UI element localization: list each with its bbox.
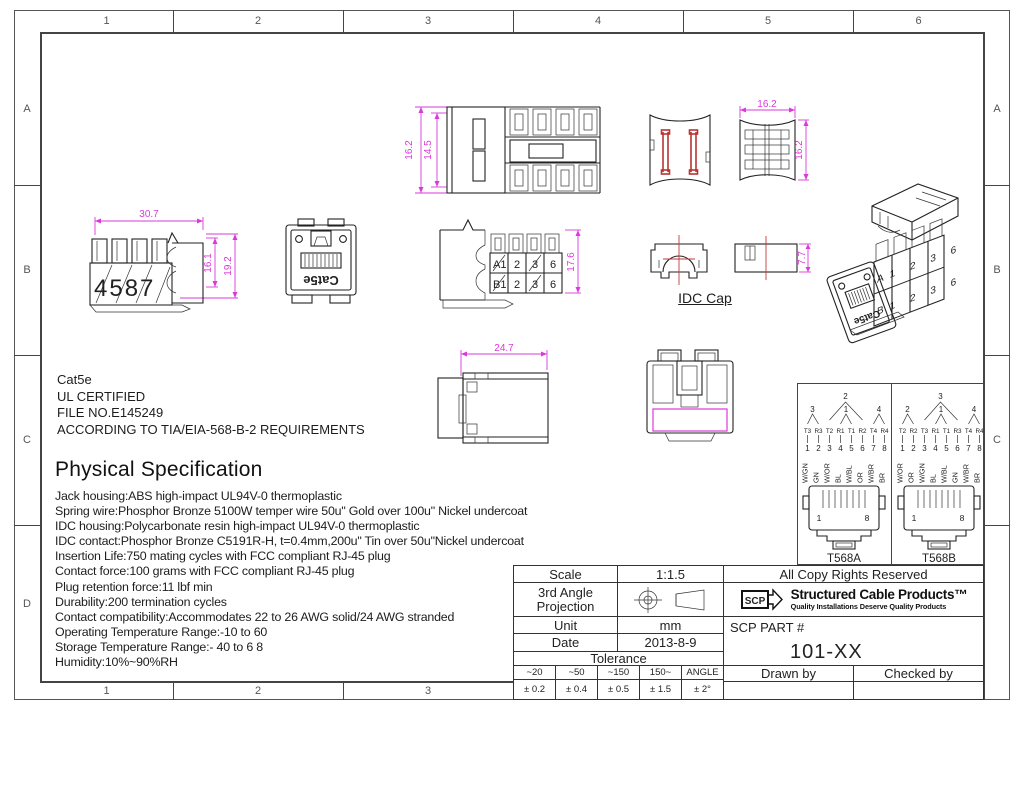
dim-19-2: 19.2 — [223, 256, 234, 276]
dim-17-6: 17.6 — [566, 252, 577, 272]
copyright-cell: All Copy Rights Reserved — [723, 565, 984, 583]
pin-number: 2 — [911, 444, 916, 453]
grid-col-3: 3 — [343, 10, 513, 32]
wire-color: W/BR — [867, 464, 876, 483]
dim-cap-w: 16.2 — [757, 99, 777, 110]
tr-label: T2 — [899, 428, 907, 435]
tr-label: R4 — [975, 428, 984, 435]
dim-16-1: 16.1 — [203, 253, 214, 273]
part-number-value: 101-XX — [790, 641, 863, 664]
spec-line: Insertion Life:750 mating cycles with FC… — [55, 549, 525, 564]
pin-number: 5 — [849, 444, 854, 453]
idc-cap-side-views: 7.7 — [633, 230, 818, 290]
pin-number: 1 — [900, 444, 905, 453]
pair-number: 3 — [810, 405, 815, 414]
wire-color: OR — [907, 472, 916, 483]
tr-label: T3 — [921, 428, 929, 435]
grid-col-bottom-1: 1 — [40, 682, 173, 700]
side-view-drawing: 30.7 16.1 19.2 4587 — [80, 205, 255, 320]
dim-24-7: 24.7 — [494, 343, 514, 354]
grid-col-6: 6 — [853, 10, 984, 32]
cell-a1: A1 — [493, 259, 506, 271]
tol-value-3: ± 0.5 — [597, 679, 640, 700]
pin-number: 6 — [860, 444, 865, 453]
grid-row-B: B — [14, 185, 40, 355]
tol-range-1: ~20 — [513, 665, 556, 680]
dim-7-7: 7.7 — [797, 251, 808, 265]
tol-range-2: ~50 — [555, 665, 598, 680]
brand-tagline: Quality Installations Deserve Quality Pr… — [791, 602, 968, 611]
tr-label: T4 — [965, 428, 973, 435]
tr-label: R1 — [836, 428, 845, 435]
t568b-diagram: 3 2 1 4 T2 R2 T3 R1 T1 R3 T4 R4 1 — [891, 384, 985, 564]
spec-line: Humidity:10%~90%RH — [55, 655, 525, 670]
wire-color: GN — [812, 472, 821, 483]
date-value-cell: 2013-8-9 — [617, 633, 724, 652]
checked-by-signature[interactable] — [853, 681, 984, 700]
tr-label: R3 — [814, 428, 823, 435]
tolerance-header-cell: Tolerance — [513, 651, 724, 666]
grid-row-right-B: B — [984, 185, 1010, 355]
grid-row-A: A — [14, 32, 40, 185]
cell-a3: 3 — [532, 259, 538, 271]
jack-pin-first: 1 — [817, 513, 822, 523]
wire-color: GN — [951, 472, 960, 483]
grid-row-C: C — [14, 355, 40, 525]
wire-color: W/BR — [962, 464, 971, 483]
tol-value-1: ± 0.2 — [513, 679, 556, 700]
cell-b6: 6 — [550, 279, 556, 291]
grid-col-bottom-3: 3 — [343, 682, 513, 700]
t568a-diagram: 2 3 1 4 T3 R3 T2 R1 T1 R2 T4 R4 1 — [798, 384, 891, 564]
tr-label: T1 — [848, 428, 856, 435]
pair-number: 4 — [877, 405, 882, 414]
tr-label: R4 — [880, 428, 889, 435]
part-number-label: SCP PART # — [730, 620, 804, 635]
pair-number: 2 — [843, 392, 848, 401]
iso-row-b: B1 2 3 6 — [877, 274, 962, 317]
third-angle-projection-icon — [626, 585, 716, 615]
grid-col-1: 1 — [40, 10, 173, 32]
tol-range-3: ~150 — [597, 665, 640, 680]
pin-number: 3 — [922, 444, 927, 453]
tr-label: R2 — [858, 428, 867, 435]
note-file: FILE NO.E145249 — [57, 405, 365, 422]
wire-color: W/GN — [801, 463, 810, 483]
jack-pin-first: 1 — [912, 513, 917, 523]
pair-number: 2 — [905, 405, 910, 414]
wire-color: W/GN — [918, 463, 927, 483]
grid-row-right-A: A — [984, 32, 1010, 185]
pin-number: 8 — [977, 444, 982, 453]
checked-by-cell: Checked by — [853, 665, 984, 682]
tr-label: T1 — [943, 428, 951, 435]
spec-title: Physical Specification — [55, 458, 525, 482]
spec-line: Jack housing:ABS high-impact UL94V-0 the… — [55, 489, 525, 504]
spec-line: Durability:200 termination cycles — [55, 595, 525, 610]
pin-number: 1 — [805, 444, 810, 453]
front-face-label: Cat5e — [303, 273, 338, 288]
wiring-standard-name: T568B — [922, 553, 956, 565]
spec-line: Spring wire:Phosphor Bronze 5100W temper… — [55, 504, 525, 519]
pin-number: 3 — [827, 444, 832, 453]
projection-line1: 3rd Angle — [538, 586, 593, 600]
cell-b1: B1 — [493, 279, 506, 291]
frame-left-line — [40, 32, 42, 682]
wire-color: BR — [973, 473, 982, 483]
grid-col-2: 2 — [173, 10, 343, 32]
grid-row-D: D — [14, 525, 40, 682]
front-view-drawing: Cat5e — [272, 215, 367, 315]
grid-col-bottom-2: 2 — [173, 682, 343, 700]
tr-label: T3 — [804, 428, 812, 435]
physical-specification: Physical Specification Jack housing:ABS … — [55, 458, 525, 670]
tr-label: R3 — [953, 428, 962, 435]
tol-value-4: ± 1.5 — [639, 679, 682, 700]
scp-logo: SCP — [740, 586, 786, 613]
terminal-numbers: 4587 — [94, 275, 155, 302]
pin-number: 7 — [966, 444, 971, 453]
unit-label-cell: Unit — [513, 616, 618, 634]
wire-color: W/OR — [823, 463, 832, 483]
wire-color: W/BL — [845, 465, 854, 483]
grid-col-5: 5 — [683, 10, 853, 32]
pair-number: 1 — [844, 405, 849, 414]
brand-name: Structured Cable Products™ — [791, 588, 968, 602]
wire-color: BR — [878, 473, 887, 483]
projection-line2: Projection — [537, 600, 595, 614]
drawn-by-signature[interactable] — [723, 681, 854, 700]
grid-col-4: 4 — [513, 10, 683, 32]
wiring-diagram-panel: 2 3 1 4 T3 R3 T2 R1 T1 R2 T4 R4 1 — [797, 383, 984, 565]
spec-line: IDC contact:Phosphor Bronze C5191R-H, t=… — [55, 534, 525, 549]
cell-a6: 6 — [550, 259, 556, 271]
pin-number: 2 — [816, 444, 821, 453]
engineering-drawing-sheet: { "frame": { "top_cols": ["1","2","3","4… — [0, 0, 1024, 791]
projection-label-cell: 3rd Angle Projection — [513, 582, 618, 617]
dim-14-5: 14.5 — [423, 140, 434, 160]
pair-number: 4 — [972, 405, 977, 414]
note-cat5e: Cat5e — [57, 372, 365, 389]
frame-top-line — [40, 32, 984, 34]
spec-line: Operating Temperature Range:-10 to 60 — [55, 625, 525, 640]
wire-color: BL — [834, 474, 843, 483]
scp-logo-text: SCP — [744, 596, 765, 607]
cell-a2: 2 — [514, 259, 520, 271]
top-view-drawing: 16.2 14.5 — [395, 85, 625, 215]
isometric-view: Cat5e A1 2 3 6 B1 2 3 6 — [810, 172, 985, 340]
cell-b2: 2 — [514, 279, 520, 291]
dim-cap-h: 16.2 — [794, 140, 805, 160]
tol-value-5: ± 2° — [681, 679, 724, 700]
pin-number: 6 — [955, 444, 960, 453]
idc-cap-top-views: 16.2 16.2 — [635, 100, 815, 200]
wire-color: BL — [929, 474, 938, 483]
title-block: Scale 1:1.5 3rd Angle Projection Unit mm… — [513, 565, 984, 700]
scale-label-cell: Scale — [513, 565, 618, 583]
dim-16-2: 16.2 — [404, 140, 415, 160]
wiring-standard-name: T568A — [827, 553, 861, 565]
tr-label: T4 — [870, 428, 878, 435]
bottom-view-drawing: 24.7 — [430, 340, 590, 445]
wire-color: OR — [856, 472, 865, 483]
pin-number: 4 — [838, 444, 843, 453]
pair-number: 3 — [938, 392, 943, 401]
jack-pin-last: 8 — [865, 513, 870, 523]
wire-color: W/BL — [940, 465, 949, 483]
pin-number: 7 — [871, 444, 876, 453]
grid-row-right-C: C — [984, 355, 1010, 525]
part-number-cell: SCP PART # 101-XX — [723, 616, 984, 666]
tr-label: T2 — [826, 428, 834, 435]
tol-value-2: ± 0.4 — [555, 679, 598, 700]
tol-range-5: ANGLE — [681, 665, 724, 680]
tr-label: R1 — [931, 428, 940, 435]
dim-30-7: 30.7 — [139, 209, 159, 220]
scale-value-cell: 1:1.5 — [617, 565, 724, 583]
drawn-by-cell: Drawn by — [723, 665, 854, 682]
pin-number: 8 — [882, 444, 887, 453]
spec-line: Plug retention force:11 lbf min — [55, 580, 525, 595]
spec-line: IDC housing:Polycarbonate resin high-imp… — [55, 519, 525, 534]
idc-cap-label: IDC Cap — [660, 290, 750, 306]
spec-line: Contact force:100 grams with FCC complia… — [55, 564, 525, 579]
projection-symbol-cell — [617, 582, 724, 617]
spec-line: Contact compatibility:Accommodates 22 to… — [55, 610, 525, 625]
jack-pin-last: 8 — [960, 513, 965, 523]
right-side-view-drawing: A1 2 3 6 B1 2 3 6 17.6 — [435, 205, 585, 320]
pair-number: 1 — [939, 405, 944, 414]
tr-label: R2 — [909, 428, 918, 435]
brand-cell: SCP Structured Cable Products™ Quality I… — [723, 582, 984, 617]
rear-view-drawing — [633, 345, 748, 445]
pin-number: 4 — [933, 444, 938, 453]
note-ul: UL CERTIFIED — [57, 389, 365, 406]
wire-color: W/OR — [896, 463, 905, 483]
pin-number: 5 — [944, 444, 949, 453]
date-label-cell: Date — [513, 633, 618, 652]
tol-range-4: 150~ — [639, 665, 682, 680]
cell-b3: 3 — [532, 279, 538, 291]
spec-line: Storage Temperature Range:- 40 to 6 8 — [55, 640, 525, 655]
certification-notes: Cat5e UL CERTIFIED FILE NO.E145249 ACCOR… — [57, 372, 365, 438]
unit-value-cell: mm — [617, 616, 724, 634]
note-tia: ACCORDING TO TIA/EIA-568-B-2 REQUIREMENT… — [57, 422, 365, 439]
